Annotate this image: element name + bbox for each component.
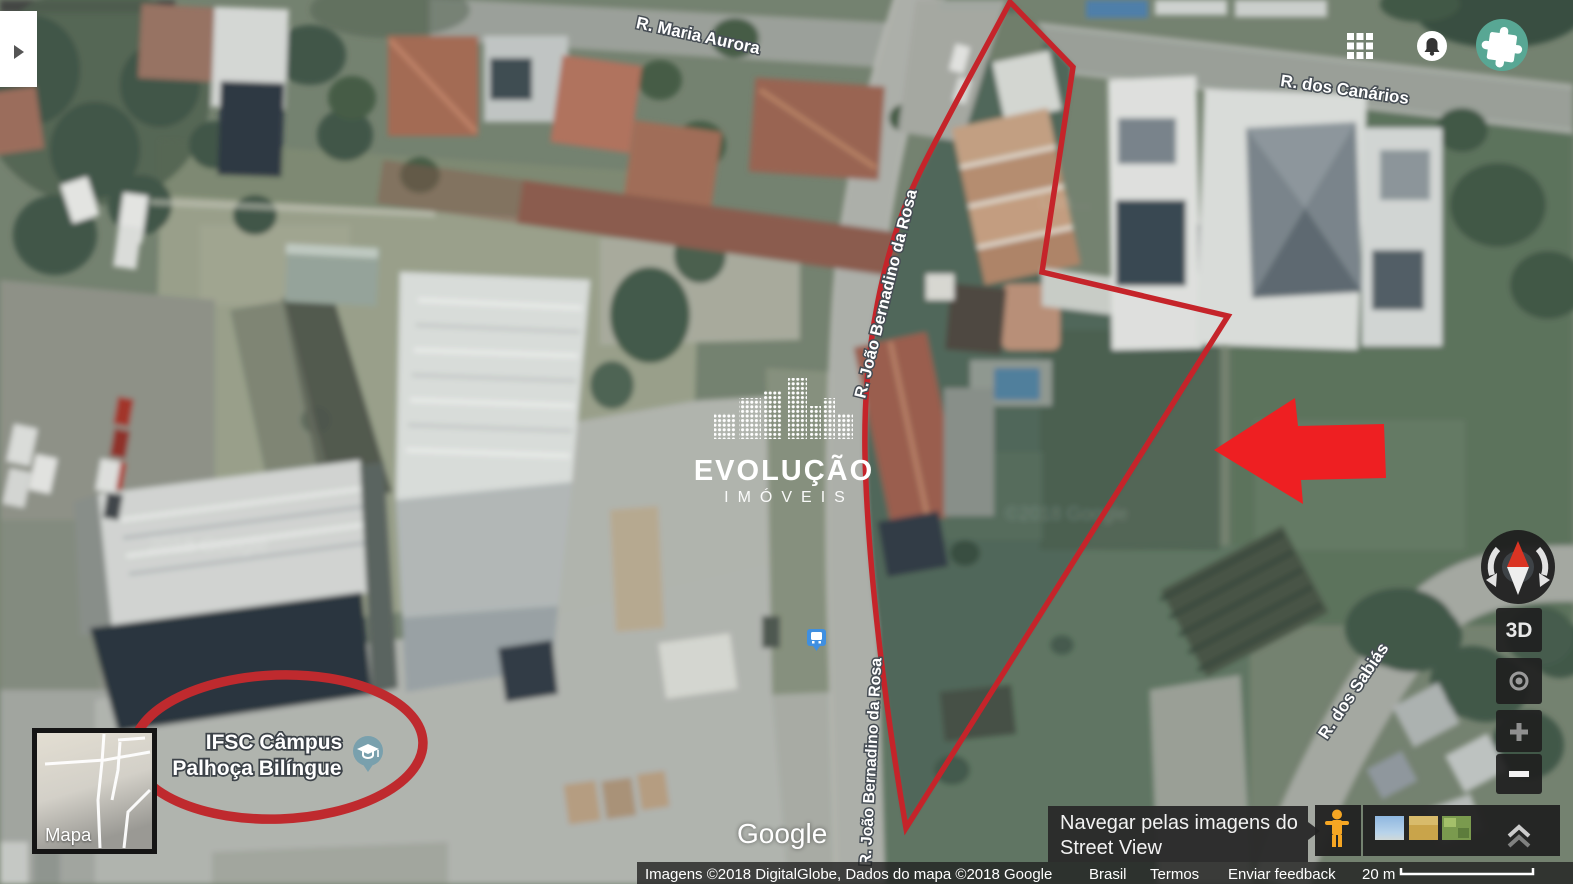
svg-text:Mapa: Mapa	[45, 824, 92, 845]
svg-text:Google: Google	[737, 818, 827, 849]
svg-text:Termos: Termos	[1150, 866, 1199, 883]
svg-text:IFSC Câmpus: IFSC Câmpus	[206, 731, 343, 754]
svg-text:Palhoça Bilíngue: Palhoça Bilíngue	[172, 757, 341, 780]
svg-text:3D: 3D	[1506, 619, 1533, 642]
svg-text:EVOLUÇÃO: EVOLUÇÃO	[694, 453, 874, 487]
svg-text:IMÓVEIS: IMÓVEIS	[724, 487, 854, 506]
svg-text:Navegar pelas imagens do: Navegar pelas imagens do	[1060, 812, 1298, 834]
svg-text:20 m: 20 m	[1362, 866, 1395, 883]
svg-text:Imagens ©2018 DigitalGlobe, Da: Imagens ©2018 DigitalGlobe, Dados do map…	[645, 866, 1052, 883]
svg-text:Enviar feedback: Enviar feedback	[1228, 866, 1336, 883]
svg-text:Street View: Street View	[1060, 837, 1162, 859]
svg-text:Brasil: Brasil	[1089, 866, 1127, 883]
